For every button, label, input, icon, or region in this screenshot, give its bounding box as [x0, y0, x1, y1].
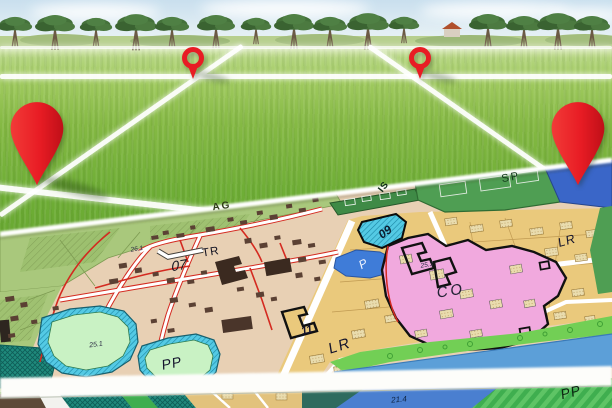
- location-pin-icon: [6, 92, 68, 196]
- zone-label-pp-pond: PP: [162, 354, 183, 372]
- location-pin-icon: [180, 46, 206, 80]
- stock-photo-scene: AG TR 07 26.1 IS SP 09 P 25.3 CO LR LR 1…: [0, 0, 612, 408]
- zone-label-co: CO: [437, 281, 465, 301]
- zone-label-07: 07: [171, 257, 187, 273]
- parcel-label-21-4: 21.4: [391, 395, 407, 404]
- location-pin-icon: [547, 92, 609, 196]
- location-pin-icon: [407, 46, 433, 80]
